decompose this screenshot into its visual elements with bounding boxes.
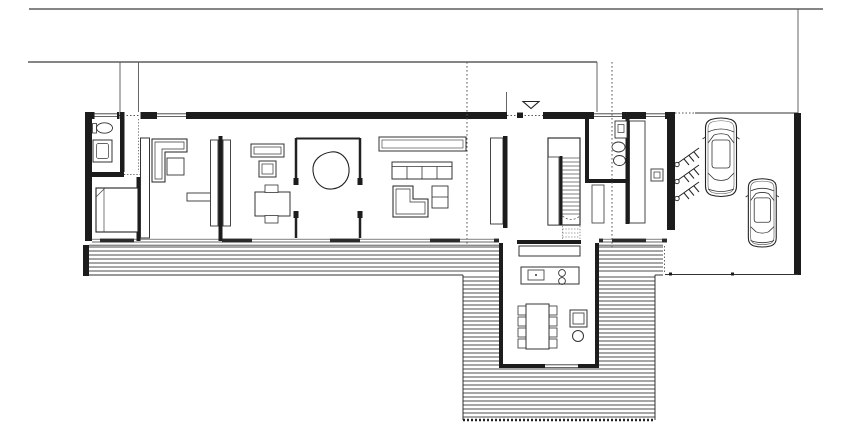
plant-symbol-3 xyxy=(678,182,699,199)
car-1 xyxy=(703,118,740,197)
patio-bench xyxy=(519,246,580,256)
car-2-path-1 xyxy=(748,179,776,247)
wall-shelf-1 xyxy=(187,193,211,201)
wall-north-b xyxy=(117,112,120,119)
plant-base-2 xyxy=(675,179,679,183)
atrium-jamb-l2 xyxy=(294,211,299,218)
stair-treads xyxy=(563,158,581,214)
deck-boards-west xyxy=(89,247,499,271)
stair-closet xyxy=(548,157,559,225)
floor-plan-drawing xyxy=(0,0,850,433)
entrance-door-leaf xyxy=(517,113,523,119)
wall-north-a xyxy=(92,112,95,119)
atrium-jamb-r1 xyxy=(358,178,363,185)
patio-wall-bottom-east xyxy=(578,364,599,368)
sink-3 xyxy=(651,169,663,181)
toilet-2-tank xyxy=(615,121,627,138)
mullion-5 xyxy=(612,239,646,243)
wall-east xyxy=(667,112,675,230)
mullion-6 xyxy=(494,239,499,243)
patio-wall-right xyxy=(595,243,599,368)
patio-planter-circle xyxy=(573,331,584,342)
patio-grill xyxy=(570,310,587,327)
desk-1-chair-top xyxy=(265,185,278,193)
atrium-jamb-l1 xyxy=(294,178,299,185)
wardrobe-2 xyxy=(211,140,219,226)
outdoor-kitchen-tap xyxy=(535,274,537,276)
mullion-1 xyxy=(100,239,134,243)
mullion-7 xyxy=(599,239,603,243)
wardrobe-4 xyxy=(491,138,504,224)
toilet-1-tank xyxy=(93,124,97,134)
deck-boards-patio-right xyxy=(599,277,655,365)
window-north-1 xyxy=(95,114,118,117)
toilet-1-bowl xyxy=(97,123,113,133)
plant-symbol-1 xyxy=(678,148,699,165)
closet-2 xyxy=(592,185,604,223)
deck-boards-south xyxy=(463,369,655,417)
desk-1 xyxy=(255,192,290,216)
wall-north-d xyxy=(186,112,507,119)
wall-bath1-horizontal xyxy=(85,172,124,177)
mullion-2 xyxy=(222,239,252,243)
patio-wall-left xyxy=(499,243,503,368)
stair-below-dotted xyxy=(563,226,581,239)
carport-right-wall xyxy=(794,113,801,275)
outdoor-kitchen-counter xyxy=(521,267,579,284)
wall-north-f xyxy=(622,112,646,119)
stair-wall xyxy=(560,156,563,225)
wall-north-e xyxy=(543,112,594,119)
patio-dining-table xyxy=(526,304,549,349)
carport-tick-2 xyxy=(731,273,734,276)
mullion-8 xyxy=(662,239,667,243)
deck-boards-east xyxy=(599,247,663,271)
wardrobe-5 xyxy=(630,121,646,223)
mullion-4 xyxy=(430,239,460,243)
wall-bath2-south xyxy=(585,179,629,183)
atrium-jamb-r2 xyxy=(358,211,363,218)
wardrobe-3 xyxy=(223,140,231,226)
carport-tick-1 xyxy=(669,273,672,276)
sink-2 xyxy=(612,142,625,152)
floor-plan-canvas xyxy=(0,0,850,433)
sofa-l2-outer xyxy=(393,186,428,217)
console-1 xyxy=(251,144,284,157)
desk-1-chair-bottom xyxy=(265,216,278,224)
car-2 xyxy=(746,179,779,247)
deck-boards-patio-left xyxy=(463,277,499,365)
plant-symbol-2 xyxy=(678,165,699,182)
wall-bath2-west xyxy=(585,119,589,183)
wall-bath1-vertical xyxy=(120,112,125,172)
deck-west-cap xyxy=(83,245,89,276)
plant-base-3 xyxy=(675,196,679,200)
courtyard-tree xyxy=(313,152,349,189)
wall-north-c xyxy=(141,112,158,119)
patio-top-sill xyxy=(517,240,581,244)
wall-hall-west xyxy=(503,136,508,228)
entrance-marker-triangle xyxy=(523,102,539,109)
sideboard xyxy=(379,137,466,151)
patio-wall-bottom-west xyxy=(499,364,545,368)
window-north-4 xyxy=(646,114,665,117)
toilet-2-bowl xyxy=(614,156,626,166)
bed xyxy=(96,188,138,232)
wardrobe-1 xyxy=(141,138,150,238)
window-north-3 xyxy=(594,114,622,117)
side-table-1 xyxy=(167,158,184,175)
stool-1 xyxy=(259,161,276,177)
plant-base-1 xyxy=(675,162,679,166)
car-1-path-1 xyxy=(706,118,737,197)
wall-bedroom2 xyxy=(219,136,223,241)
mullion-3 xyxy=(330,239,360,243)
window-north-2 xyxy=(157,114,186,117)
